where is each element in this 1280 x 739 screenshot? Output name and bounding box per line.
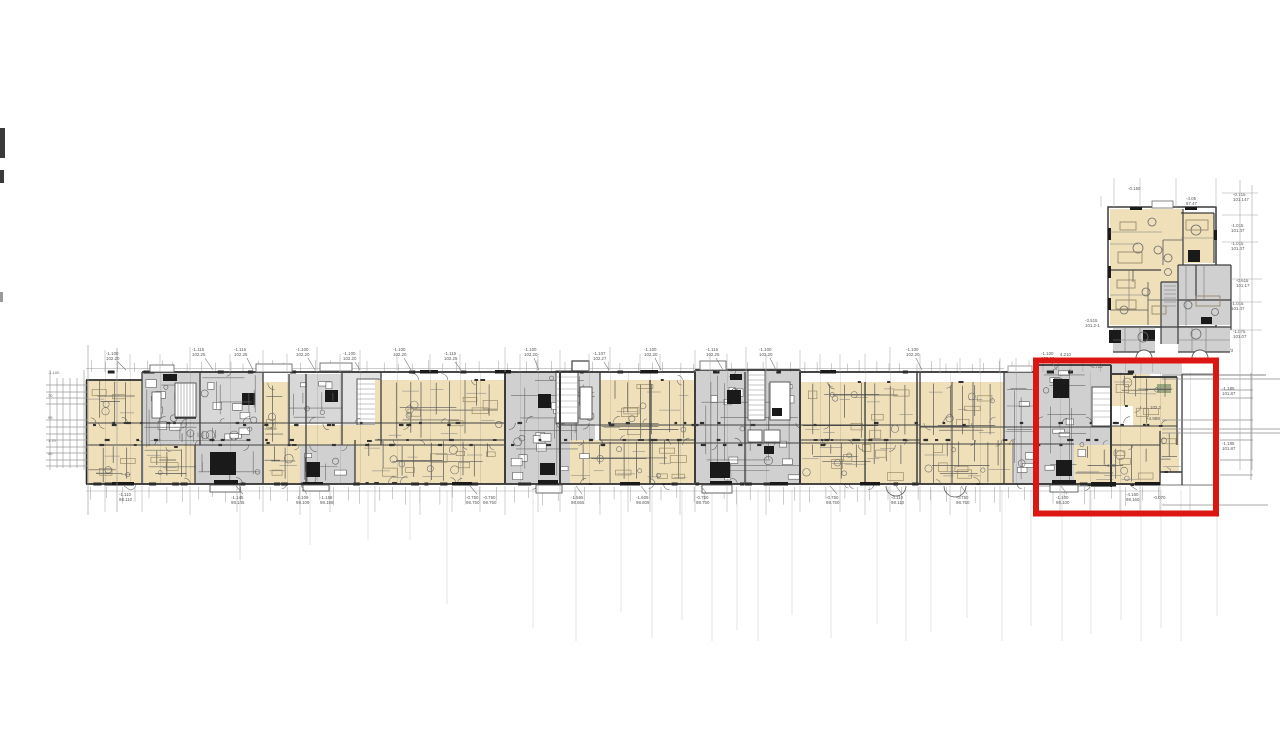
svg-text:101.147: 101.147 xyxy=(1233,197,1249,202)
svg-text:101.87: 101.87 xyxy=(1222,446,1236,451)
svg-text:102.25: 102.25 xyxy=(444,356,458,361)
svg-text:101.47: 101.47 xyxy=(1231,246,1245,251)
svg-text:102.20: 102.20 xyxy=(759,352,773,357)
svg-text:-1.100: -1.100 xyxy=(48,370,60,375)
svg-text:102.2: 102.2 xyxy=(1150,405,1162,410)
svg-text:102.20: 102.20 xyxy=(296,352,310,357)
svg-text:102.25: 102.25 xyxy=(234,352,248,357)
svg-text:-0.070: -0.070 xyxy=(1153,495,1166,500)
svg-text:+4.888: +4.888 xyxy=(1146,416,1160,421)
svg-text:-0.710: -0.710 xyxy=(1090,364,1103,369)
svg-text:70: 70 xyxy=(48,393,53,398)
svg-text:102.27: 102.27 xyxy=(593,356,607,361)
svg-text:98.110: 98.110 xyxy=(891,500,905,505)
svg-text:101.47: 101.47 xyxy=(1231,306,1245,311)
svg-text:98.110: 98.110 xyxy=(119,497,133,502)
svg-text:1.70: 1.70 xyxy=(48,438,57,443)
svg-text:102.20: 102.20 xyxy=(106,356,120,361)
svg-text:98.750: 98.750 xyxy=(696,500,710,505)
svg-text:101.87: 101.87 xyxy=(1222,391,1236,396)
svg-text:102.20: 102.20 xyxy=(906,352,920,357)
svg-text:98.100: 98.100 xyxy=(1056,500,1070,505)
svg-text:98.750: 98.750 xyxy=(826,500,840,505)
svg-text:98.750: 98.750 xyxy=(466,500,480,505)
svg-text:+4.88: +4.88 xyxy=(1104,463,1116,468)
svg-text:97.47: 97.47 xyxy=(1186,201,1198,206)
svg-text:98.160: 98.160 xyxy=(1126,497,1140,502)
svg-text:101.17: 101.17 xyxy=(1236,283,1250,288)
svg-text:102.20: 102.20 xyxy=(524,352,538,357)
svg-text:102.25: 102.25 xyxy=(192,352,206,357)
svg-text:95: 95 xyxy=(48,415,53,420)
svg-text:102.25: 102.25 xyxy=(706,352,720,357)
svg-text:98.158: 98.158 xyxy=(320,500,334,505)
svg-text:102.20: 102.20 xyxy=(393,352,407,357)
svg-text:98.750: 98.750 xyxy=(956,500,970,505)
svg-text:102.20: 102.20 xyxy=(343,356,357,361)
svg-text:4.210: 4.210 xyxy=(1060,352,1072,357)
svg-text:98.109: 98.109 xyxy=(296,500,310,505)
svg-text:40: 40 xyxy=(48,451,53,456)
svg-text:98.145: 98.145 xyxy=(231,500,245,505)
svg-text:101.47: 101.47 xyxy=(1231,228,1245,233)
svg-text:98.750: 98.750 xyxy=(483,500,497,505)
svg-text:101.2-1: 101.2-1 xyxy=(1085,323,1100,328)
svg-text:98.565: 98.565 xyxy=(571,500,585,505)
svg-text:102.20: 102.20 xyxy=(644,352,658,357)
svg-text:98.609: 98.609 xyxy=(636,500,650,505)
svg-text:-0.150: -0.150 xyxy=(1128,186,1141,191)
